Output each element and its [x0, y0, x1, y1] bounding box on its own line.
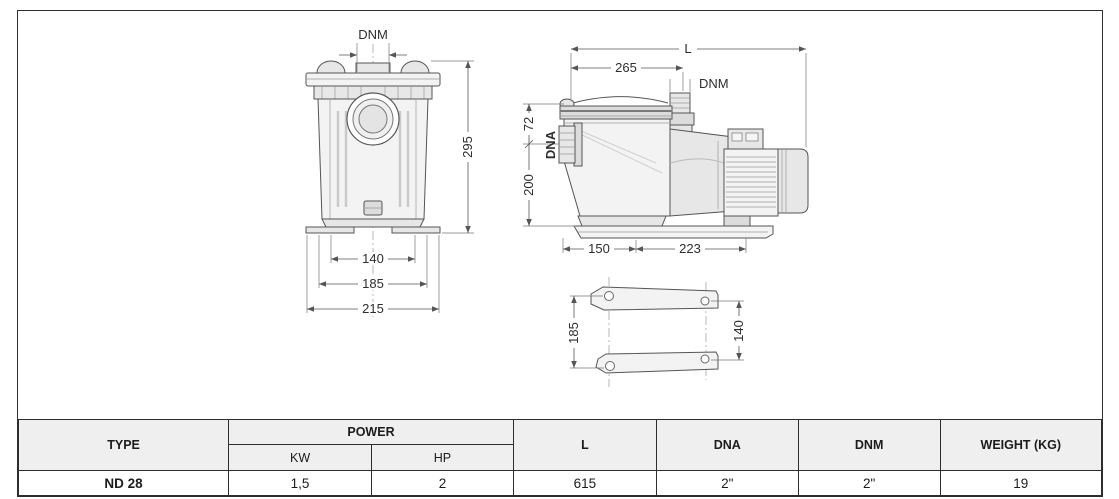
svg-text:140: 140 — [362, 251, 384, 266]
side-265-dim: 265 — [611, 60, 641, 75]
header-weight: WEIGHT (KG) — [940, 420, 1101, 471]
svg-text:DNM: DNM — [358, 27, 388, 42]
technical-drawing-area: DNM 295 140 185 — [18, 11, 1102, 419]
side-72-dim: 72 — [521, 113, 536, 135]
svg-text:265: 265 — [615, 60, 637, 75]
cell-type: ND 28 — [19, 471, 229, 496]
header-hp: HP — [372, 445, 514, 471]
front-view-drawing: DNM 295 140 185 — [306, 27, 475, 317]
header-kw: KW — [229, 445, 372, 471]
table-row: ND 28 1,5 2 615 2" 2" 19 — [19, 471, 1102, 496]
front-height-dim: 295 — [460, 132, 475, 162]
pump-technical-drawing: DNM 295 140 185 — [18, 11, 1102, 419]
cell-dna: 2" — [656, 471, 798, 496]
header-l: L — [513, 420, 656, 471]
base-140-dim: 140 — [731, 316, 746, 346]
side-200-dim: 200 — [521, 170, 536, 200]
svg-text:140: 140 — [731, 320, 746, 342]
header-dnm: DNM — [798, 420, 940, 471]
front-w185-dim: 185 — [358, 276, 388, 291]
cell-hp: 2 — [372, 471, 514, 496]
side-view-drawing: L 265 DNM — [521, 41, 808, 256]
svg-text:L: L — [684, 41, 691, 56]
base-plate-drawing: 185 140 — [566, 277, 746, 387]
header-dna: DNA — [656, 420, 798, 471]
cell-kw: 1,5 — [229, 471, 372, 496]
svg-text:215: 215 — [362, 301, 384, 316]
front-w140-dim: 140 — [358, 251, 388, 266]
side-dna-label: DNA — [543, 130, 558, 159]
svg-text:200: 200 — [521, 174, 536, 196]
cell-weight: 19 — [940, 471, 1101, 496]
front-w215-dim: 215 — [358, 301, 388, 316]
base-185-dim: 185 — [566, 318, 581, 348]
side-dnm-label: DNM — [699, 76, 729, 91]
spec-table: TYPE POWER L DNA DNM WEIGHT (KG) KW HP N… — [18, 419, 1102, 496]
cell-dnm: 2" — [798, 471, 940, 496]
svg-text:185: 185 — [566, 322, 581, 344]
svg-text:223: 223 — [679, 241, 701, 256]
svg-text:DNA: DNA — [543, 130, 558, 159]
header-power: POWER — [229, 420, 514, 445]
svg-text:295: 295 — [460, 136, 475, 158]
svg-text:150: 150 — [588, 241, 610, 256]
front-dnm-dim: DNM — [356, 27, 390, 42]
header-type: TYPE — [19, 420, 229, 471]
svg-text:185: 185 — [362, 276, 384, 291]
side-223-dim: 223 — [675, 241, 705, 256]
page-frame: DNM 295 140 185 — [17, 10, 1103, 497]
side-l-dim: L — [679, 41, 697, 56]
svg-text:72: 72 — [521, 117, 536, 131]
side-150-dim: 150 — [584, 241, 614, 256]
cell-l: 615 — [513, 471, 656, 496]
